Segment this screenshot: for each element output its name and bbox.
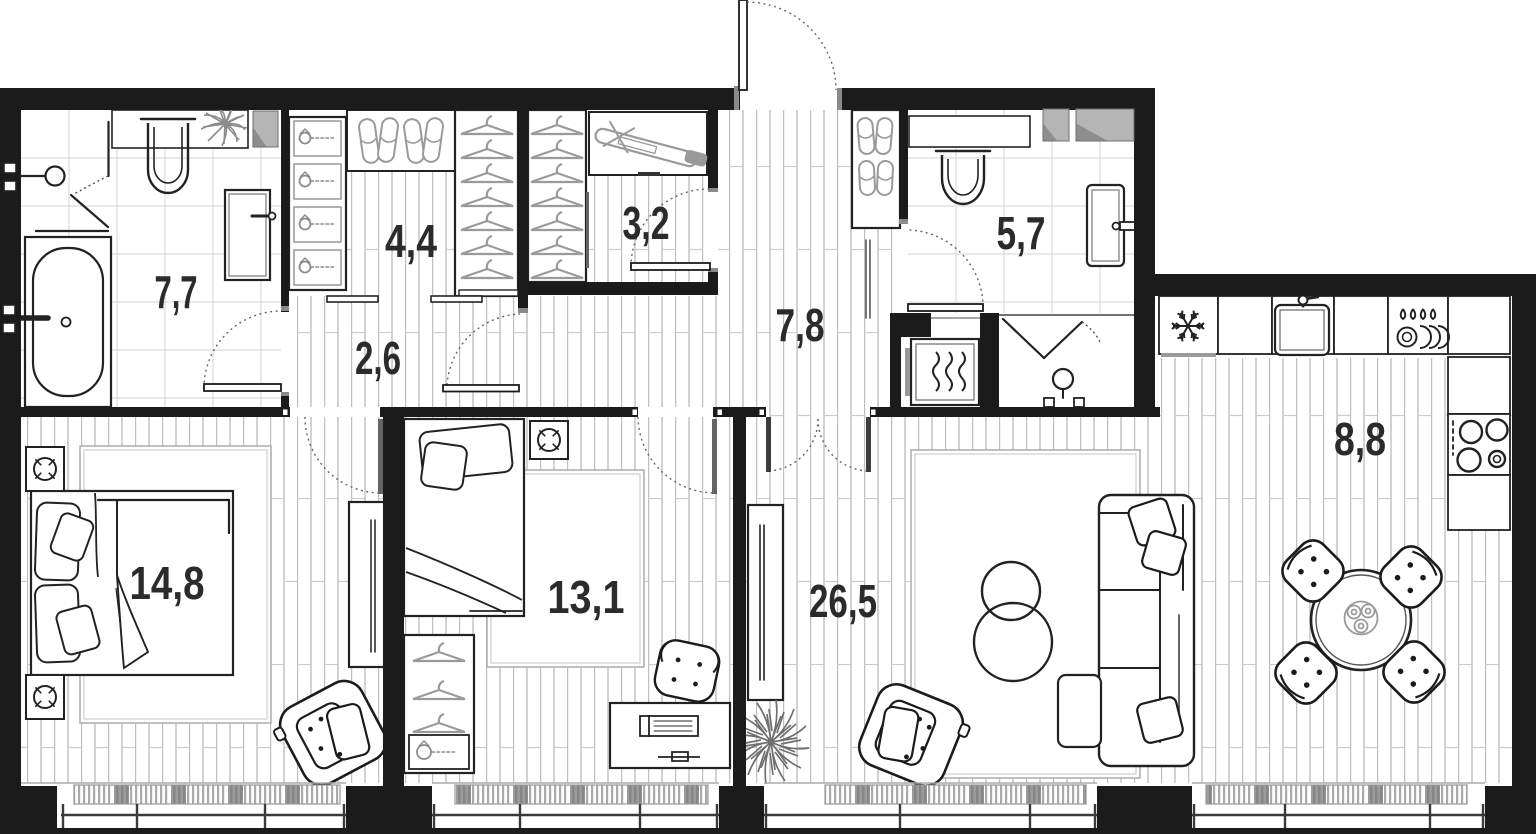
svg-text:26,5: 26,5 bbox=[809, 575, 877, 627]
svg-text:5,7: 5,7 bbox=[997, 207, 1046, 259]
svg-text:13,1: 13,1 bbox=[548, 571, 625, 623]
svg-text:7,8: 7,8 bbox=[776, 299, 825, 351]
svg-text:3,2: 3,2 bbox=[623, 197, 670, 249]
svg-text:4,4: 4,4 bbox=[385, 215, 437, 267]
svg-text:14,8: 14,8 bbox=[130, 557, 205, 609]
svg-text:2,6: 2,6 bbox=[355, 332, 401, 384]
svg-text:7,7: 7,7 bbox=[155, 266, 198, 318]
svg-text:8,8: 8,8 bbox=[1334, 413, 1386, 465]
